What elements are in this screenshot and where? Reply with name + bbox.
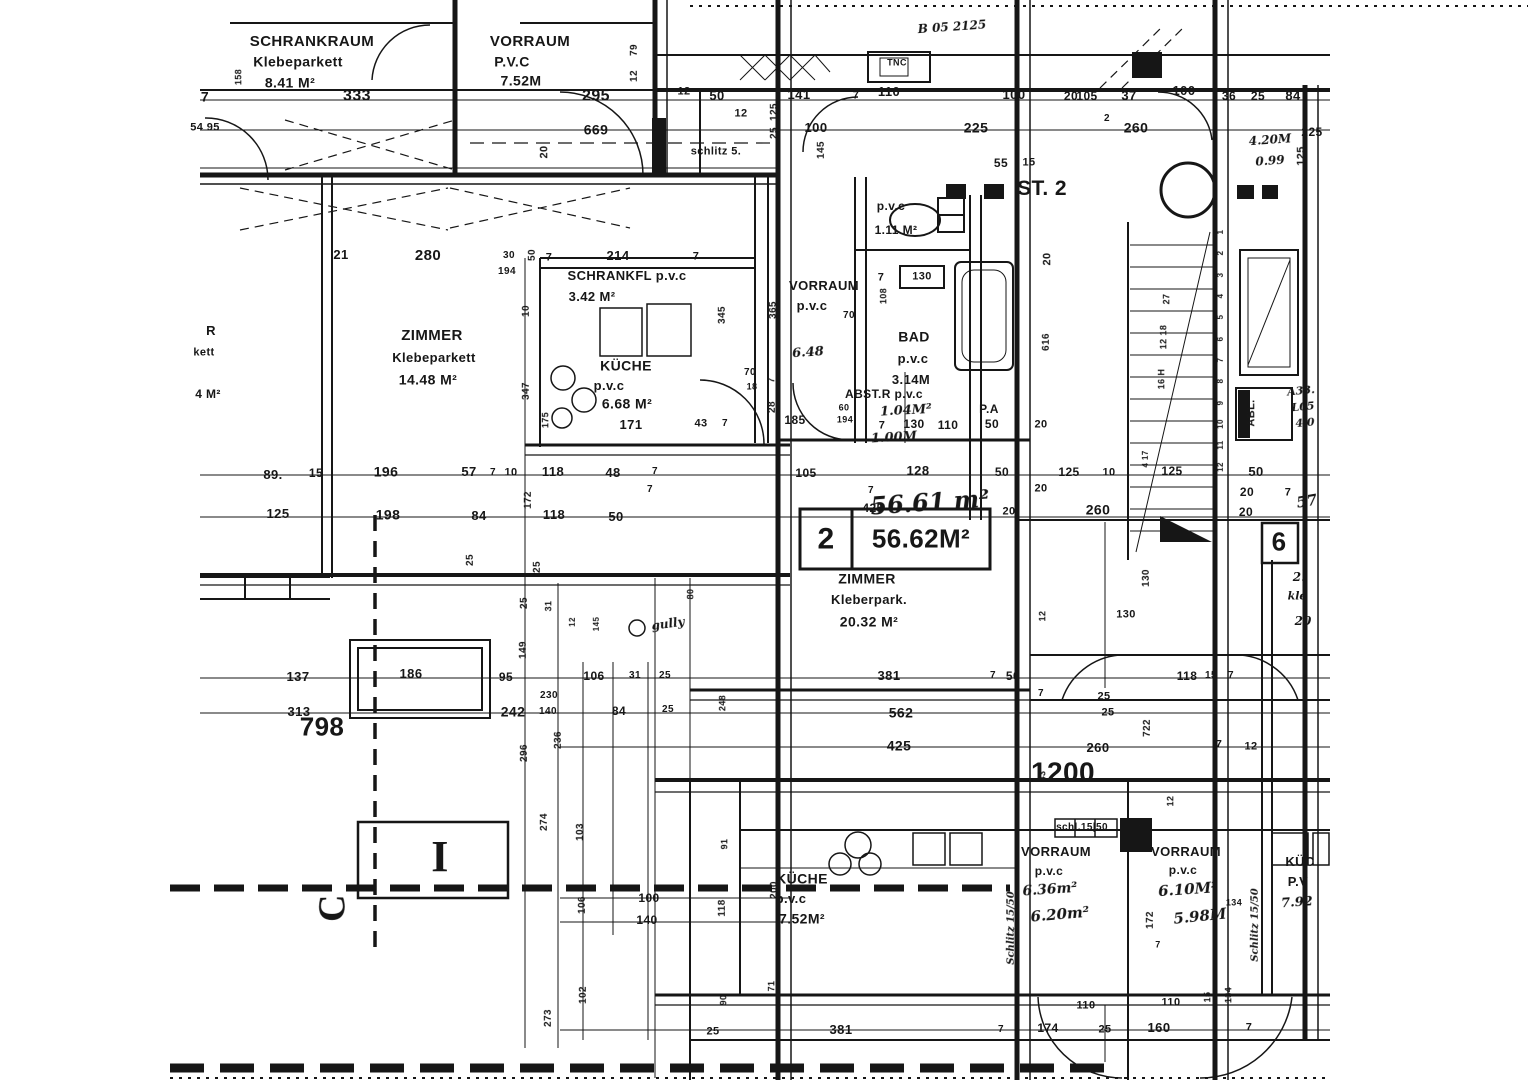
plan-text: 145: [817, 141, 827, 159]
plan-text: 25: [466, 554, 476, 566]
plan-text: 145: [593, 617, 601, 632]
plan-text: 280: [415, 248, 441, 264]
plan-text: 260: [1124, 121, 1149, 136]
plan-text: 345: [718, 306, 728, 324]
plan-text: 105: [1076, 90, 1097, 102]
plan-text: 100: [1003, 88, 1026, 102]
plan-text: SCHRANKRAUM: [250, 34, 374, 50]
handwritten-note: 57: [1295, 493, 1318, 512]
plan-text: 616: [1042, 333, 1052, 351]
plan-text: 12: [630, 70, 640, 82]
plan-text: 50: [995, 466, 1009, 478]
plan-text: 722: [1143, 719, 1153, 737]
plan-text: 365: [769, 301, 779, 319]
plan-text: 7.52M: [501, 74, 542, 89]
plan-text: 12 18: [1159, 325, 1168, 350]
plan-text: p.v.c: [594, 379, 625, 393]
plan-text: 110: [938, 419, 959, 431]
plan-text: p.v.c: [797, 299, 828, 313]
plan-text: 25: [1097, 691, 1110, 702]
plan-text: 100: [1173, 84, 1196, 98]
plan-text: 7: [879, 420, 886, 431]
plan-text: 95: [499, 671, 513, 683]
plan-text: schlitz 5.: [691, 146, 741, 157]
plan-text: 43: [1038, 771, 1047, 782]
plan-text: 7: [767, 377, 776, 382]
plan-text: 20: [1239, 506, 1253, 518]
plan-text: 20: [1002, 506, 1015, 517]
plan-text: 15: [1203, 992, 1212, 1003]
plan-text: 110: [1162, 997, 1181, 1008]
plan-text: 194: [837, 415, 853, 424]
plan-text: 6.68 M²: [602, 397, 652, 412]
plan-text: 28: [768, 401, 778, 413]
handwritten-note: 6.20m²: [1030, 905, 1090, 926]
plan-text: 12: [1217, 462, 1225, 472]
plan-text: 347: [522, 382, 532, 400]
plan-text: 198: [376, 508, 401, 523]
plan-text: BAD: [898, 330, 930, 345]
plan-text: 37: [1121, 89, 1136, 103]
plan-text: 172: [524, 491, 534, 509]
plan-text: 80: [686, 589, 695, 600]
handwritten-note: 4.0: [1295, 416, 1315, 429]
plan-text: 84: [612, 705, 626, 717]
plan-text: 84: [471, 509, 486, 523]
plan-labels: SCHRANKRAUMKlebeparkett8.41 M²VORRAUMP.V…: [0, 0, 1530, 1080]
plan-text: 2: [1217, 251, 1225, 256]
plan-text: 7: [722, 419, 728, 429]
plan-text: 91: [720, 839, 729, 850]
plan-text: 12: [569, 617, 577, 627]
plan-text: 7: [878, 272, 885, 283]
plan-text: 84: [1285, 89, 1300, 103]
plan-text: 50: [528, 249, 538, 261]
handwritten-note: 6.36m²: [1022, 881, 1078, 899]
plan-text: 158: [234, 69, 243, 85]
plan-text: 30: [503, 251, 515, 261]
handwritten-note: gully: [651, 616, 686, 633]
plan-text: 7: [990, 671, 996, 681]
plan-text: 110: [1077, 1000, 1096, 1011]
plan-text: 11: [1217, 440, 1225, 449]
plan-text: 118: [1177, 670, 1198, 682]
plan-text: 21: [333, 248, 348, 262]
plan-text: KÜCHE: [776, 872, 828, 887]
plan-text: 106: [583, 670, 604, 682]
plan-text: 25: [1101, 707, 1114, 718]
plan-text: 12: [1038, 611, 1047, 622]
plan-text: 185: [784, 414, 805, 426]
plan-text: 25: [662, 705, 674, 715]
plan-text: 562: [889, 706, 914, 721]
plan-text: 3: [1217, 273, 1225, 278]
handwritten-note: 5.98M: [1173, 906, 1227, 927]
plan-text: KÜCHE: [600, 359, 652, 374]
plan-text: 125: [267, 507, 290, 521]
plan-text: 10: [1217, 419, 1225, 429]
plan-text: VORRAUM: [490, 34, 570, 50]
plan-text: 7: [647, 485, 653, 495]
plan-text: 50: [608, 510, 623, 524]
plan-text: 38: [1136, 823, 1147, 832]
plan-text: SCHRANKFL p.v.c: [568, 269, 687, 283]
plan-text: 313: [288, 705, 311, 719]
plan-text: VORRAUM: [1021, 845, 1091, 859]
handwritten-note: Schlitz 15/50: [1251, 888, 1261, 961]
plan-text: 7: [1155, 940, 1160, 949]
plan-text: 4 M²: [195, 388, 221, 400]
plan-text: P.A: [979, 403, 999, 415]
plan-text: C: [313, 894, 353, 922]
plan-text: 140: [539, 707, 557, 717]
plan-text: 171: [620, 418, 643, 432]
plan-text: 106: [578, 896, 588, 914]
plan-text: 103: [576, 823, 586, 841]
plan-text: I: [431, 834, 449, 880]
handwritten-note: Schlitz 15/50: [1007, 891, 1017, 964]
plan-text: 141: [788, 88, 811, 102]
plan-text: 14.48 M²: [399, 373, 457, 388]
plan-text: 50: [1248, 465, 1263, 479]
plan-text: 118: [542, 465, 564, 479]
plan-text: 172: [1146, 911, 1156, 929]
plan-text: 60: [839, 403, 850, 412]
plan-text: 25: [1251, 90, 1265, 102]
plan-text: 7: [201, 90, 209, 105]
plan-text: 9: [1217, 401, 1225, 406]
plan-text: ABST.R p.v.c: [845, 388, 923, 400]
plan-text: p.v.c: [1169, 864, 1197, 876]
plan-text: 7: [1217, 358, 1225, 363]
handwritten-note: 20: [1295, 615, 1312, 627]
plan-text: 7: [868, 486, 874, 496]
plan-text: 20.32 M²: [840, 615, 898, 630]
plan-text: 102: [579, 986, 589, 1004]
plan-text: 125: [1296, 146, 1307, 166]
plan-text: VORRAUM: [1151, 845, 1221, 859]
plan-text: 130: [1142, 569, 1152, 587]
plan-text: 27: [1162, 294, 1171, 305]
plan-text: 50: [985, 418, 999, 430]
plan-text: ZIMMER: [401, 328, 463, 344]
plan-text: 8: [1217, 379, 1225, 384]
plan-text: 20: [1240, 486, 1254, 498]
plan-text: 15: [1022, 157, 1035, 168]
plan-text: 125: [770, 103, 780, 121]
plan-text: 7: [1285, 487, 1292, 498]
handwritten-note: 1.00M: [871, 430, 918, 446]
plan-text: 15: [309, 467, 323, 479]
plan-text: 333: [343, 89, 371, 106]
handwritten-note: 7.92: [1281, 895, 1314, 911]
plan-text: 7: [652, 467, 658, 477]
plan-text: 25: [1098, 1024, 1111, 1035]
plan-text: 2: [1104, 114, 1110, 124]
plan-text: 225: [964, 121, 989, 136]
plan-text: 273: [544, 1009, 554, 1027]
plan-text: 25: [533, 561, 543, 573]
plan-text: 274: [540, 813, 550, 831]
plan-text: 10: [522, 305, 532, 317]
plan-text: 7: [693, 251, 700, 262]
plan-text: 7: [1216, 739, 1223, 750]
plan-text: 12: [677, 86, 690, 97]
plan-text: 10: [1102, 467, 1115, 478]
plan-text: 669: [584, 123, 609, 138]
handwritten-note: 0.99: [1255, 154, 1285, 168]
plan-text: 260: [1086, 503, 1111, 518]
plan-text: ABL.: [1246, 399, 1257, 426]
plan-text: 3.42 M²: [569, 290, 616, 304]
plan-text: 134: [1224, 987, 1233, 1003]
plan-text: 20: [1034, 419, 1047, 430]
plan-text: R: [206, 324, 216, 338]
handwritten-note: 6.48: [792, 345, 825, 361]
plan-text: 110: [878, 85, 900, 99]
plan-text: 381: [830, 1023, 853, 1037]
handwritten-note: 2.: [1293, 571, 1306, 583]
plan-text: 118: [718, 899, 728, 916]
plan-text: 54 95: [190, 122, 220, 133]
plan-text: 3.14M: [892, 373, 930, 387]
plan-text: p.v.c: [1035, 865, 1063, 877]
plan-text: 55: [994, 157, 1008, 169]
plan-text: 36: [1222, 90, 1236, 102]
plan-text: TNC: [887, 58, 907, 67]
plan-text: 12: [734, 108, 747, 119]
plan-text: 174: [1037, 1022, 1058, 1034]
plan-text: 15: [1205, 671, 1217, 681]
plan-text: 200: [770, 881, 780, 899]
plan-text: Klebeparkett: [392, 351, 476, 365]
plan-text: 260: [1087, 741, 1110, 755]
plan-text: 230: [540, 691, 558, 701]
plan-text: 12: [1166, 796, 1175, 807]
plan-text: P.V.C: [494, 55, 529, 70]
plan-text: 1: [1217, 230, 1225, 235]
plan-text: 7.52M²: [779, 912, 825, 927]
plan-text: 7: [1038, 689, 1044, 699]
plan-text: 248: [718, 695, 727, 711]
plan-text: 70: [843, 311, 855, 321]
plan-text: 48: [605, 466, 620, 480]
plan-text: VORRAUM: [789, 279, 859, 293]
plan-text: 105: [795, 467, 816, 479]
handwritten-note: 56.61 m²: [870, 486, 991, 519]
plan-text: 20: [1042, 252, 1053, 265]
plan-text: 186: [400, 667, 423, 681]
plan-text: 295: [582, 89, 610, 106]
plan-text: 79: [630, 44, 640, 56]
plan-text: 100: [805, 121, 828, 135]
plan-text: 118: [543, 508, 565, 522]
plan-text: 130: [912, 271, 932, 282]
plan-text: 71: [767, 981, 776, 992]
plan-text: 25: [520, 597, 530, 609]
plan-text: Kleberpark.: [831, 593, 907, 607]
plan-text: 70: [744, 368, 756, 378]
plan-text: 134: [1226, 898, 1242, 907]
plan-text: 7: [546, 252, 553, 263]
plan-text: schl.15|50: [1056, 823, 1108, 833]
plan-text: 89.: [263, 468, 282, 482]
plan-text: 100: [638, 892, 659, 904]
plan-text: 160: [1148, 1021, 1171, 1035]
handwritten-note: A33.: [1287, 384, 1316, 398]
plan-text: 6: [1272, 528, 1287, 555]
plan-text: 236: [554, 731, 564, 749]
plan-text: 175: [541, 412, 550, 428]
plan-text: 194: [498, 267, 516, 277]
plan-text: 12: [1244, 741, 1257, 752]
plan-text: P.V: [1288, 875, 1308, 889]
plan-text: 7: [853, 90, 860, 101]
plan-text: 7: [1246, 1022, 1253, 1033]
plan-text: p.v.c: [776, 892, 807, 906]
plan-text: 2: [817, 523, 834, 554]
plan-text: 8.41 M²: [265, 76, 315, 91]
plan-text: 56.62M²: [872, 525, 970, 552]
plan-text: 196: [374, 465, 399, 480]
plan-text: 242: [501, 705, 526, 720]
plan-text: 90: [719, 995, 728, 1006]
plan-text: 5: [1217, 315, 1225, 320]
plan-text: p.v.c: [877, 200, 905, 212]
plan-text: 16 H: [1157, 369, 1166, 390]
plan-text: 50: [1006, 670, 1020, 682]
plan-text: 4 17: [1142, 450, 1150, 467]
plan-text: 43: [694, 418, 707, 429]
plan-text: 1.11 M²: [875, 224, 918, 236]
plan-text: 425: [862, 502, 883, 514]
plan-text: 6: [1217, 337, 1225, 342]
plan-text: KÜC: [1285, 855, 1314, 869]
handwritten-note: kle: [1288, 590, 1307, 601]
handwritten-note: 6.10M²: [1158, 880, 1219, 900]
plan-text: p.v.c: [898, 352, 929, 366]
plan-text: ST. 2: [1017, 178, 1067, 200]
plan-text: 31: [629, 671, 641, 681]
plan-text: 296: [520, 744, 530, 762]
plan-text: 128: [907, 464, 930, 478]
plan-text: 18: [747, 382, 758, 391]
plan-text: 4: [1217, 294, 1225, 299]
plan-text: Klebeparkett: [253, 55, 343, 70]
handwritten-note: B 05 2125: [917, 18, 986, 35]
plan-text: 108: [879, 288, 888, 304]
plan-text: 25: [770, 127, 780, 139]
plan-text: 50: [709, 89, 724, 103]
plan-text: 149: [519, 641, 529, 659]
scanned-floorplan-page: SCHRANKRAUMKlebeparkett8.41 M²VORRAUMP.V…: [0, 0, 1530, 1080]
plan-text: 20: [539, 145, 550, 158]
plan-text: 130: [903, 418, 924, 430]
plan-text: 31: [544, 601, 553, 612]
plan-text: 7: [490, 468, 496, 478]
plan-text: 214: [607, 249, 630, 263]
handwritten-note: 4.20M: [1248, 132, 1291, 147]
plan-text: 381: [878, 669, 901, 683]
plan-text: 137: [287, 670, 310, 684]
plan-text: 7: [1228, 671, 1234, 681]
plan-text: 140: [636, 914, 657, 926]
plan-text: kett: [193, 347, 214, 358]
handwritten-note: L05: [1291, 400, 1315, 413]
plan-text: 20: [1034, 483, 1047, 494]
plan-text: 10: [504, 467, 517, 478]
plan-text: 25: [659, 671, 671, 681]
plan-text: 225: [1301, 126, 1322, 138]
plan-text: ZIMMER: [838, 572, 896, 587]
plan-text: 7: [998, 1025, 1004, 1035]
plan-text: 130: [1116, 609, 1136, 620]
plan-text: 125: [1058, 466, 1079, 478]
plan-text: 425: [887, 739, 912, 754]
plan-text: 125: [1161, 465, 1182, 477]
plan-text: 25: [706, 1026, 719, 1037]
plan-text: 57: [461, 465, 476, 479]
